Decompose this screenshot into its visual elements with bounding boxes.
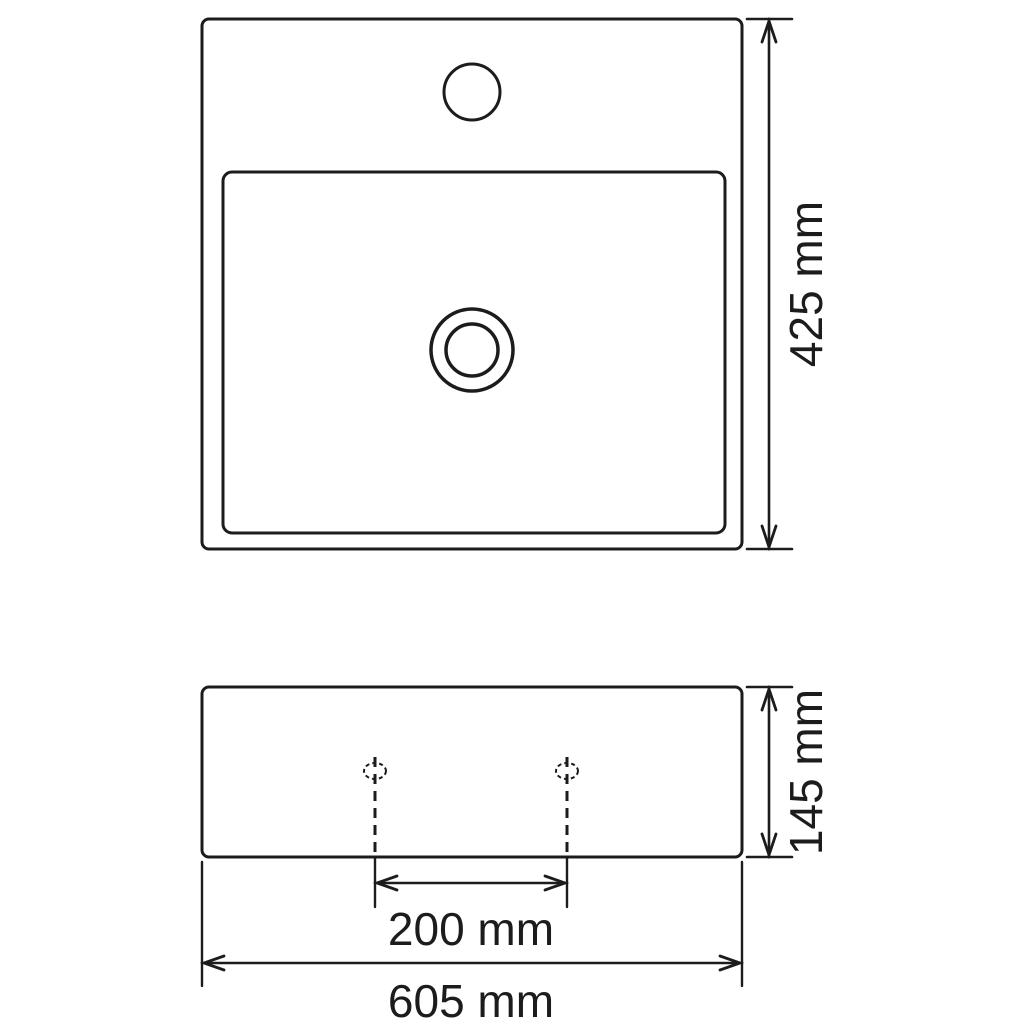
top-view [202, 19, 742, 549]
dimension-hole-spacing-label: 200 mm [388, 903, 554, 955]
drawing-canvas: 425 mm 200 mm 145 mm [0, 0, 1024, 1024]
dimension-depth-label: 145 mm [780, 689, 832, 855]
basin-bowl-outline [223, 172, 725, 533]
dimension-hole-spacing: 200 mm [375, 858, 567, 955]
dimension-height: 425 mm [747, 19, 832, 549]
dimension-depth: 145 mm [747, 687, 832, 857]
front-view-outline [202, 687, 742, 857]
dimension-height-label: 425 mm [780, 201, 832, 367]
drain-outer-ring [431, 309, 513, 391]
dimension-width-label: 605 mm [388, 975, 554, 1024]
faucet-hole [444, 64, 500, 120]
technical-drawing-svg: 425 mm 200 mm 145 mm [0, 0, 1024, 1024]
front-view [202, 687, 742, 858]
drain-inner-ring [446, 324, 498, 376]
top-view-outer-outline [202, 19, 742, 549]
